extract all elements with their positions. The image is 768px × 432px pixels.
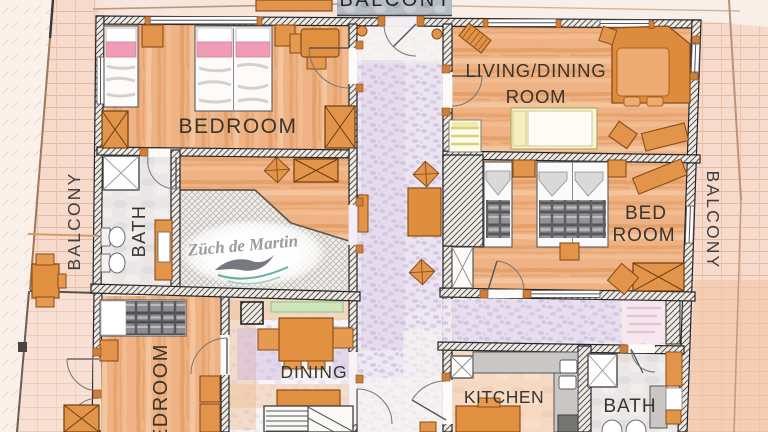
svg-text:BALCONY: BALCONY [339, 0, 452, 11]
svg-text:BALCONY: BALCONY [703, 170, 723, 269]
svg-text:BATH: BATH [129, 205, 149, 258]
svg-text:BEDROOM: BEDROOM [150, 343, 172, 432]
svg-text:BED: BED [625, 203, 667, 224]
svg-text:ROOM: ROOM [506, 86, 567, 107]
svg-text:KITCHEN: KITCHEN [464, 387, 544, 407]
svg-text:BALCONY: BALCONY [64, 171, 84, 270]
svg-text:ROOM: ROOM [612, 225, 675, 246]
svg-text:DINING: DINING [280, 362, 347, 382]
svg-text:BATH: BATH [603, 396, 656, 417]
svg-text:BEDROOM: BEDROOM [178, 115, 297, 138]
svg-text:LIVING/DINING: LIVING/DINING [466, 60, 607, 81]
